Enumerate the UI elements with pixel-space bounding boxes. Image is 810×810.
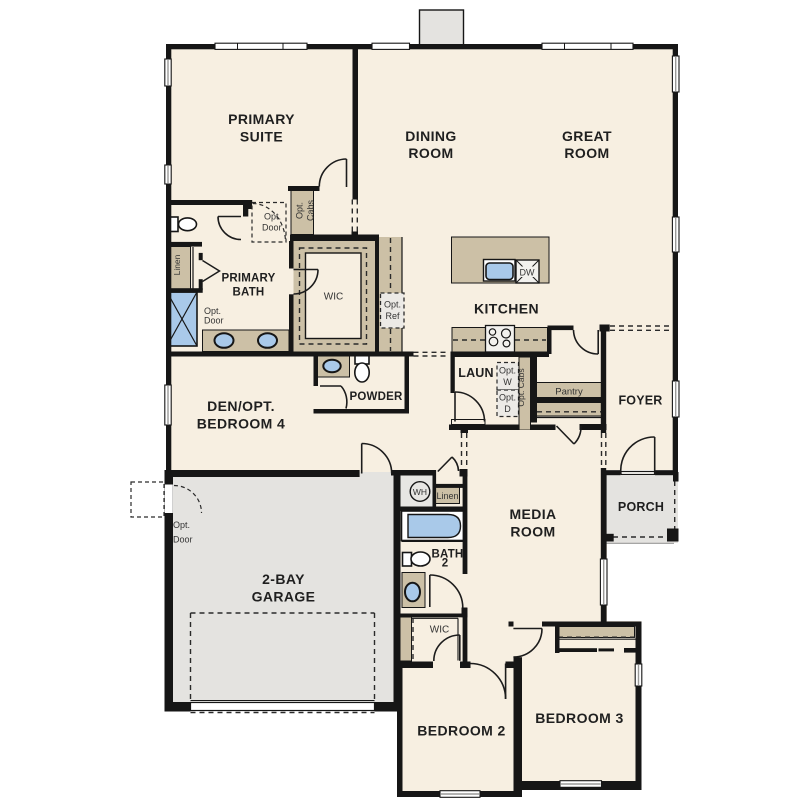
svg-text:PRIMARY: PRIMARY: [228, 111, 295, 127]
svg-text:W: W: [503, 377, 512, 387]
svg-text:DEN/OPT.: DEN/OPT.: [207, 398, 275, 414]
svg-text:FOYER: FOYER: [618, 394, 662, 408]
svg-text:Door: Door: [262, 223, 282, 233]
svg-text:BEDROOM 4: BEDROOM 4: [197, 416, 285, 432]
svg-text:D: D: [504, 404, 511, 414]
svg-text:PRIMARY: PRIMARY: [221, 273, 275, 285]
svg-text:ROOM: ROOM: [510, 524, 555, 540]
svg-text:Opt.: Opt.: [264, 212, 281, 222]
svg-text:DINING: DINING: [405, 128, 456, 144]
svg-text:Opt.: Opt.: [173, 520, 190, 530]
svg-text:GREAT: GREAT: [562, 128, 612, 144]
svg-text:PORCH: PORCH: [618, 500, 664, 514]
svg-text:Ref: Ref: [385, 311, 400, 321]
svg-text:Opt.: Opt.: [499, 393, 516, 403]
svg-text:Opt. Cabs: Opt. Cabs: [516, 368, 526, 406]
svg-text:Pantry: Pantry: [555, 387, 583, 398]
svg-text:LAUN: LAUN: [458, 366, 494, 380]
svg-text:2-BAY: 2-BAY: [262, 571, 305, 587]
svg-text:Door: Door: [173, 535, 193, 545]
svg-text:BATH: BATH: [233, 287, 265, 299]
svg-text:KITCHEN: KITCHEN: [474, 301, 539, 317]
svg-text:ROOM: ROOM: [564, 145, 609, 161]
svg-text:WIC: WIC: [324, 292, 343, 303]
svg-text:SUITE: SUITE: [240, 129, 283, 145]
svg-text:ROOM: ROOM: [408, 145, 453, 161]
svg-text:2: 2: [442, 558, 449, 570]
svg-text:DW: DW: [520, 268, 535, 278]
svg-text:Door: Door: [204, 316, 224, 326]
svg-text:WH: WH: [413, 487, 427, 497]
svg-text:Linen: Linen: [436, 491, 458, 501]
svg-text:Cabs: Cabs: [306, 199, 316, 221]
svg-text:BEDROOM 3: BEDROOM 3: [535, 710, 623, 726]
svg-text:GARAGE: GARAGE: [252, 589, 316, 605]
svg-text:BEDROOM 2: BEDROOM 2: [417, 723, 505, 739]
svg-text:Opt.: Opt.: [295, 202, 305, 219]
svg-text:MEDIA: MEDIA: [509, 506, 556, 522]
svg-text:Linen: Linen: [172, 254, 182, 275]
svg-text:Opt.: Opt.: [499, 366, 516, 376]
svg-text:Opt.: Opt.: [204, 306, 221, 316]
svg-text:POWDER: POWDER: [350, 391, 403, 403]
svg-text:Opt.: Opt.: [384, 300, 401, 310]
svg-text:WIC: WIC: [430, 625, 449, 636]
